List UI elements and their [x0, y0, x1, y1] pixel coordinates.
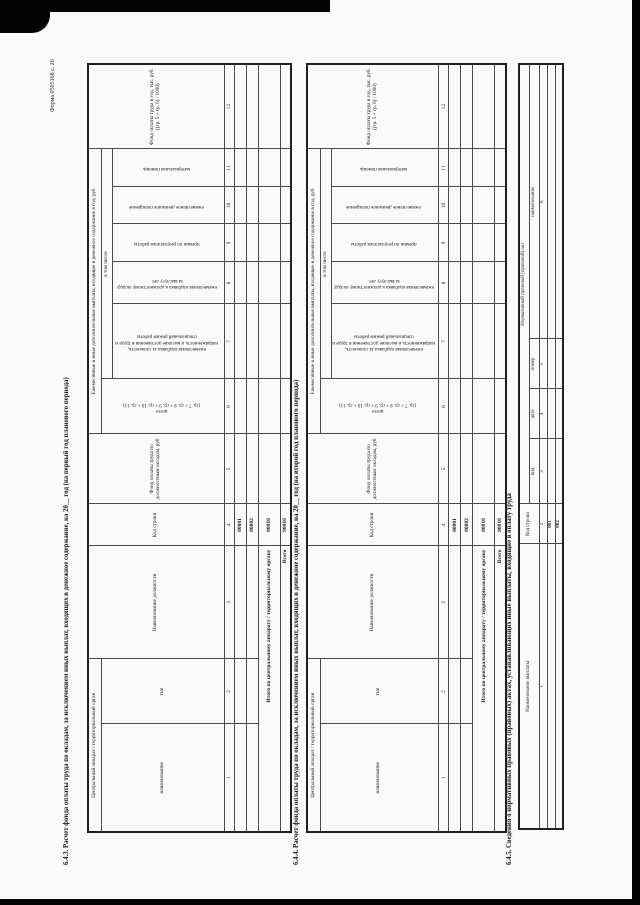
- salary-fund-header: Фонд оплаты труда по должностным окладам…: [88, 434, 224, 504]
- cell: [495, 224, 506, 262]
- col-num: 1: [439, 724, 449, 832]
- cell: [473, 187, 495, 224]
- cell: [449, 434, 461, 504]
- table-row: 00001: [449, 64, 461, 832]
- grand-total-label-cell: Всего: [495, 546, 506, 832]
- cell: [258, 304, 280, 379]
- cell: [547, 544, 555, 829]
- col-num: 5: [539, 339, 547, 389]
- cell: [280, 64, 291, 149]
- row-code: 90010: [280, 504, 291, 546]
- total-header-text: всего (гр. 7 + гр. 8 + гр. 9 + гр. 10 + …: [123, 400, 200, 413]
- row-code-header: Код строки: [519, 504, 539, 544]
- cell: [280, 149, 291, 187]
- cell: [473, 64, 495, 149]
- cell: [234, 149, 246, 187]
- col-num: 1: [539, 544, 547, 829]
- cell: [495, 304, 506, 379]
- total-row-label-cell: Итого по центральному аппарату / террито…: [258, 546, 280, 832]
- row-code: 001: [547, 504, 555, 544]
- row-code: 00002: [246, 504, 258, 546]
- type-header: тип: [320, 659, 439, 724]
- salary-fund-header: Фонд оплаты труда по должностным окладам…: [307, 434, 439, 504]
- total-header: всего (гр. 7 + гр. 8 + гр. 9 + гр. 10 + …: [101, 379, 224, 434]
- cell: [246, 149, 258, 187]
- cell: [246, 434, 258, 504]
- position-header: Наименование должности: [307, 546, 439, 659]
- cell: [461, 187, 473, 224]
- table-row: 00002: [246, 64, 258, 832]
- name-header: наименование: [320, 724, 439, 832]
- section-644-title: 6.4.4. Расчет фонда оплаты труда по окла…: [293, 380, 300, 865]
- section-643-title: 6.4.3. Расчет фонда оплаты труда по окла…: [63, 377, 70, 865]
- grand-total-row: Всего 90010: [280, 64, 291, 832]
- material-aid-header: материальная помощь: [331, 149, 439, 187]
- including-header: в том числе: [101, 149, 112, 379]
- cell: [280, 262, 291, 304]
- cell: [234, 546, 246, 659]
- section-645-title: 6.4.5. Сведения о нормативных правовых (…: [506, 493, 513, 865]
- col-num: 11: [439, 149, 449, 187]
- cell: [461, 379, 473, 434]
- seniority-header: ежемесячная надбавка к должностному окла…: [331, 262, 439, 304]
- payments-group-header: Ежемесячные и иные дополнительные выплат…: [307, 149, 320, 434]
- cell: [495, 379, 506, 434]
- col-num: 10: [224, 187, 234, 224]
- col-num: 5: [439, 434, 449, 504]
- cell: [234, 659, 246, 724]
- col-num: 2: [439, 659, 449, 724]
- col-num: 9: [439, 224, 449, 262]
- fot-table-second-year: Центральный аппарат / территориальный ор…: [306, 63, 507, 833]
- cell: [461, 659, 473, 724]
- cell: [461, 64, 473, 149]
- grand-total-label-cell: Всего: [280, 546, 291, 832]
- cell: [461, 149, 473, 187]
- cell: [449, 149, 461, 187]
- row-code: 00001: [234, 504, 246, 546]
- col-num: 7: [224, 304, 234, 379]
- payments-group-header: Ежемесячные и иные дополнительные выплат…: [88, 149, 101, 434]
- bonus-header: премии по результатам работы: [112, 224, 224, 262]
- col-num: 8: [439, 262, 449, 304]
- cell: [547, 339, 555, 389]
- cell: [280, 434, 291, 504]
- cell: [495, 187, 506, 224]
- grand-total-row: Всего 90010: [495, 64, 506, 832]
- org-group-header: Центральный аппарат / территориальный ор…: [307, 659, 320, 832]
- scan-edge-band: [632, 0, 640, 905]
- name-header: наименование: [101, 724, 224, 832]
- cell: [461, 304, 473, 379]
- col-num: 7: [439, 304, 449, 379]
- col-num: 12: [439, 64, 449, 149]
- cell: [461, 224, 473, 262]
- cell: [495, 434, 506, 504]
- col-num: 4: [224, 504, 234, 546]
- bonus-header: премии по результатам работы: [331, 224, 439, 262]
- cell: [234, 379, 246, 434]
- cell: [495, 64, 506, 149]
- cell: [449, 262, 461, 304]
- cell: [473, 224, 495, 262]
- col-num: 3: [539, 439, 547, 504]
- total-header: всего (гр. 7 + гр. 8 + гр. 9 + гр. 10 + …: [320, 379, 439, 434]
- cell: [449, 64, 461, 149]
- act-date-header: дата: [529, 389, 539, 439]
- cell: [461, 724, 473, 832]
- cell: [234, 434, 246, 504]
- cell: [246, 659, 258, 724]
- col-num: 12: [224, 64, 234, 149]
- total-row-label-cell: Итого по центральному аппарату / террито…: [473, 546, 495, 832]
- seniority-header: ежемесячная надбавка к должностному окла…: [112, 262, 224, 304]
- cell: [449, 724, 461, 832]
- col-num: 6: [224, 379, 234, 434]
- cell: [495, 262, 506, 304]
- cell: [547, 64, 555, 339]
- cell: [547, 439, 555, 504]
- cell: [234, 262, 246, 304]
- scan-corner-blob: [0, 0, 50, 33]
- cell: [449, 379, 461, 434]
- total-header-text: всего (гр. 7 + гр. 8 + гр. 9 + гр. 10 + …: [339, 400, 416, 413]
- scan-edge-band: [0, 899, 640, 905]
- cell: [246, 379, 258, 434]
- type-header: тип: [101, 659, 224, 724]
- cell: [234, 64, 246, 149]
- col-num: 3: [224, 546, 234, 659]
- cell: [280, 304, 291, 379]
- row-code-header: Код строки: [307, 504, 439, 546]
- position-header: Наименование должности: [88, 546, 224, 659]
- org-group-header: Центральный аппарат / территориальный ор…: [88, 659, 101, 832]
- cell: [234, 724, 246, 832]
- incentive-header: ежемесячное денежное поощрение: [112, 187, 224, 224]
- table-row: 00002: [461, 64, 473, 832]
- row-code: 00002: [461, 504, 473, 546]
- total-row: Итого по центральному аппарату / террито…: [473, 64, 495, 832]
- cell: [246, 64, 258, 149]
- cell: [258, 187, 280, 224]
- cell: [473, 379, 495, 434]
- scanned-form-page: Форма 0505168 с. 26 6.4.3. Расчет фонда …: [0, 0, 640, 905]
- cell: [473, 149, 495, 187]
- cell: [555, 339, 563, 389]
- cell: [246, 262, 258, 304]
- fot-table-first-year: Центральный аппарат / территориальный ор…: [87, 63, 292, 833]
- cell: [555, 439, 563, 504]
- row-code: 90010: [495, 504, 506, 546]
- col-num: 10: [439, 187, 449, 224]
- total-row: Итого по центральному аппарату / террито…: [258, 64, 280, 832]
- row-code-header: Код строки: [88, 504, 224, 546]
- cell: [449, 659, 461, 724]
- col-num: 6: [439, 379, 449, 434]
- cell: [280, 187, 291, 224]
- cell: [461, 434, 473, 504]
- cell: [234, 224, 246, 262]
- material-aid-header: материальная помощь: [112, 149, 224, 187]
- including-header: в том числе: [320, 149, 331, 379]
- table-row: 002: [555, 64, 563, 829]
- cell: [258, 64, 280, 149]
- cell: [547, 389, 555, 439]
- cell: [234, 304, 246, 379]
- row-code: 00010: [473, 504, 495, 546]
- table-row: 001: [547, 64, 555, 829]
- column-numbers-row: 1 2 3 4 5 6 7 8 9 10 11 12: [224, 64, 234, 832]
- col-num: 2: [539, 504, 547, 544]
- cell: [473, 262, 495, 304]
- cell: [473, 434, 495, 504]
- col-num: 2: [224, 659, 234, 724]
- cell: [246, 546, 258, 659]
- form-number: Форма 0505168 с. 26: [50, 59, 56, 112]
- incentive-header: ежемесячное денежное поощрение: [331, 187, 439, 224]
- cell: [555, 389, 563, 439]
- cell: [258, 224, 280, 262]
- cell: [258, 149, 280, 187]
- payment-name-header: Наименование выплаты: [519, 544, 539, 829]
- cell: [258, 262, 280, 304]
- cell: [461, 546, 473, 659]
- col-num: 4: [439, 504, 449, 546]
- cell: [234, 187, 246, 224]
- col-num: 3: [439, 546, 449, 659]
- col-num: 8: [224, 262, 234, 304]
- row-code: 00001: [449, 504, 461, 546]
- cell: [473, 304, 495, 379]
- col-num: 6: [539, 64, 547, 339]
- cell: [246, 224, 258, 262]
- complexity-header: ежемесячная надбавка за сложность, напря…: [331, 304, 439, 379]
- annual-fund-header: Фонд оплаты труда в год, тыс. руб. ((гр.…: [88, 64, 224, 149]
- act-name-header: наименование: [529, 64, 539, 339]
- annual-fund-header: Фонд оплаты труда в год, тыс. руб. ((гр.…: [307, 64, 439, 149]
- row-code: 00010: [258, 504, 280, 546]
- cell: [495, 149, 506, 187]
- col-num: 1: [224, 724, 234, 832]
- cell: [258, 434, 280, 504]
- cell: [449, 304, 461, 379]
- col-num: 11: [224, 149, 234, 187]
- cell: [280, 379, 291, 434]
- col-num: 9: [224, 224, 234, 262]
- table-row: 00001: [234, 64, 246, 832]
- cell: [246, 724, 258, 832]
- cell: [246, 187, 258, 224]
- column-numbers-row: 1 2 3 4 5 6 7 8 9 10 11 12: [439, 64, 449, 832]
- column-numbers-row: 1 2 3 4 5 6: [539, 64, 547, 829]
- legal-acts-table: Наименование выплаты Код строки Норматив…: [518, 63, 564, 830]
- cell: [449, 224, 461, 262]
- complexity-header: ежемесячная надбавка за сложность, напря…: [112, 304, 224, 379]
- col-num: 5: [224, 434, 234, 504]
- cell: [555, 64, 563, 339]
- cell: [555, 544, 563, 829]
- cell: [246, 304, 258, 379]
- act-kind-header: вид: [529, 439, 539, 504]
- cell: [449, 187, 461, 224]
- cell: [258, 379, 280, 434]
- row-code: 002: [555, 504, 563, 544]
- act-number-header: номер: [529, 339, 539, 389]
- cell: [461, 262, 473, 304]
- cell: [449, 546, 461, 659]
- col-num: 4: [539, 389, 547, 439]
- cell: [280, 224, 291, 262]
- act-group-header: Нормативный правовой (правовой) акт: [519, 64, 529, 504]
